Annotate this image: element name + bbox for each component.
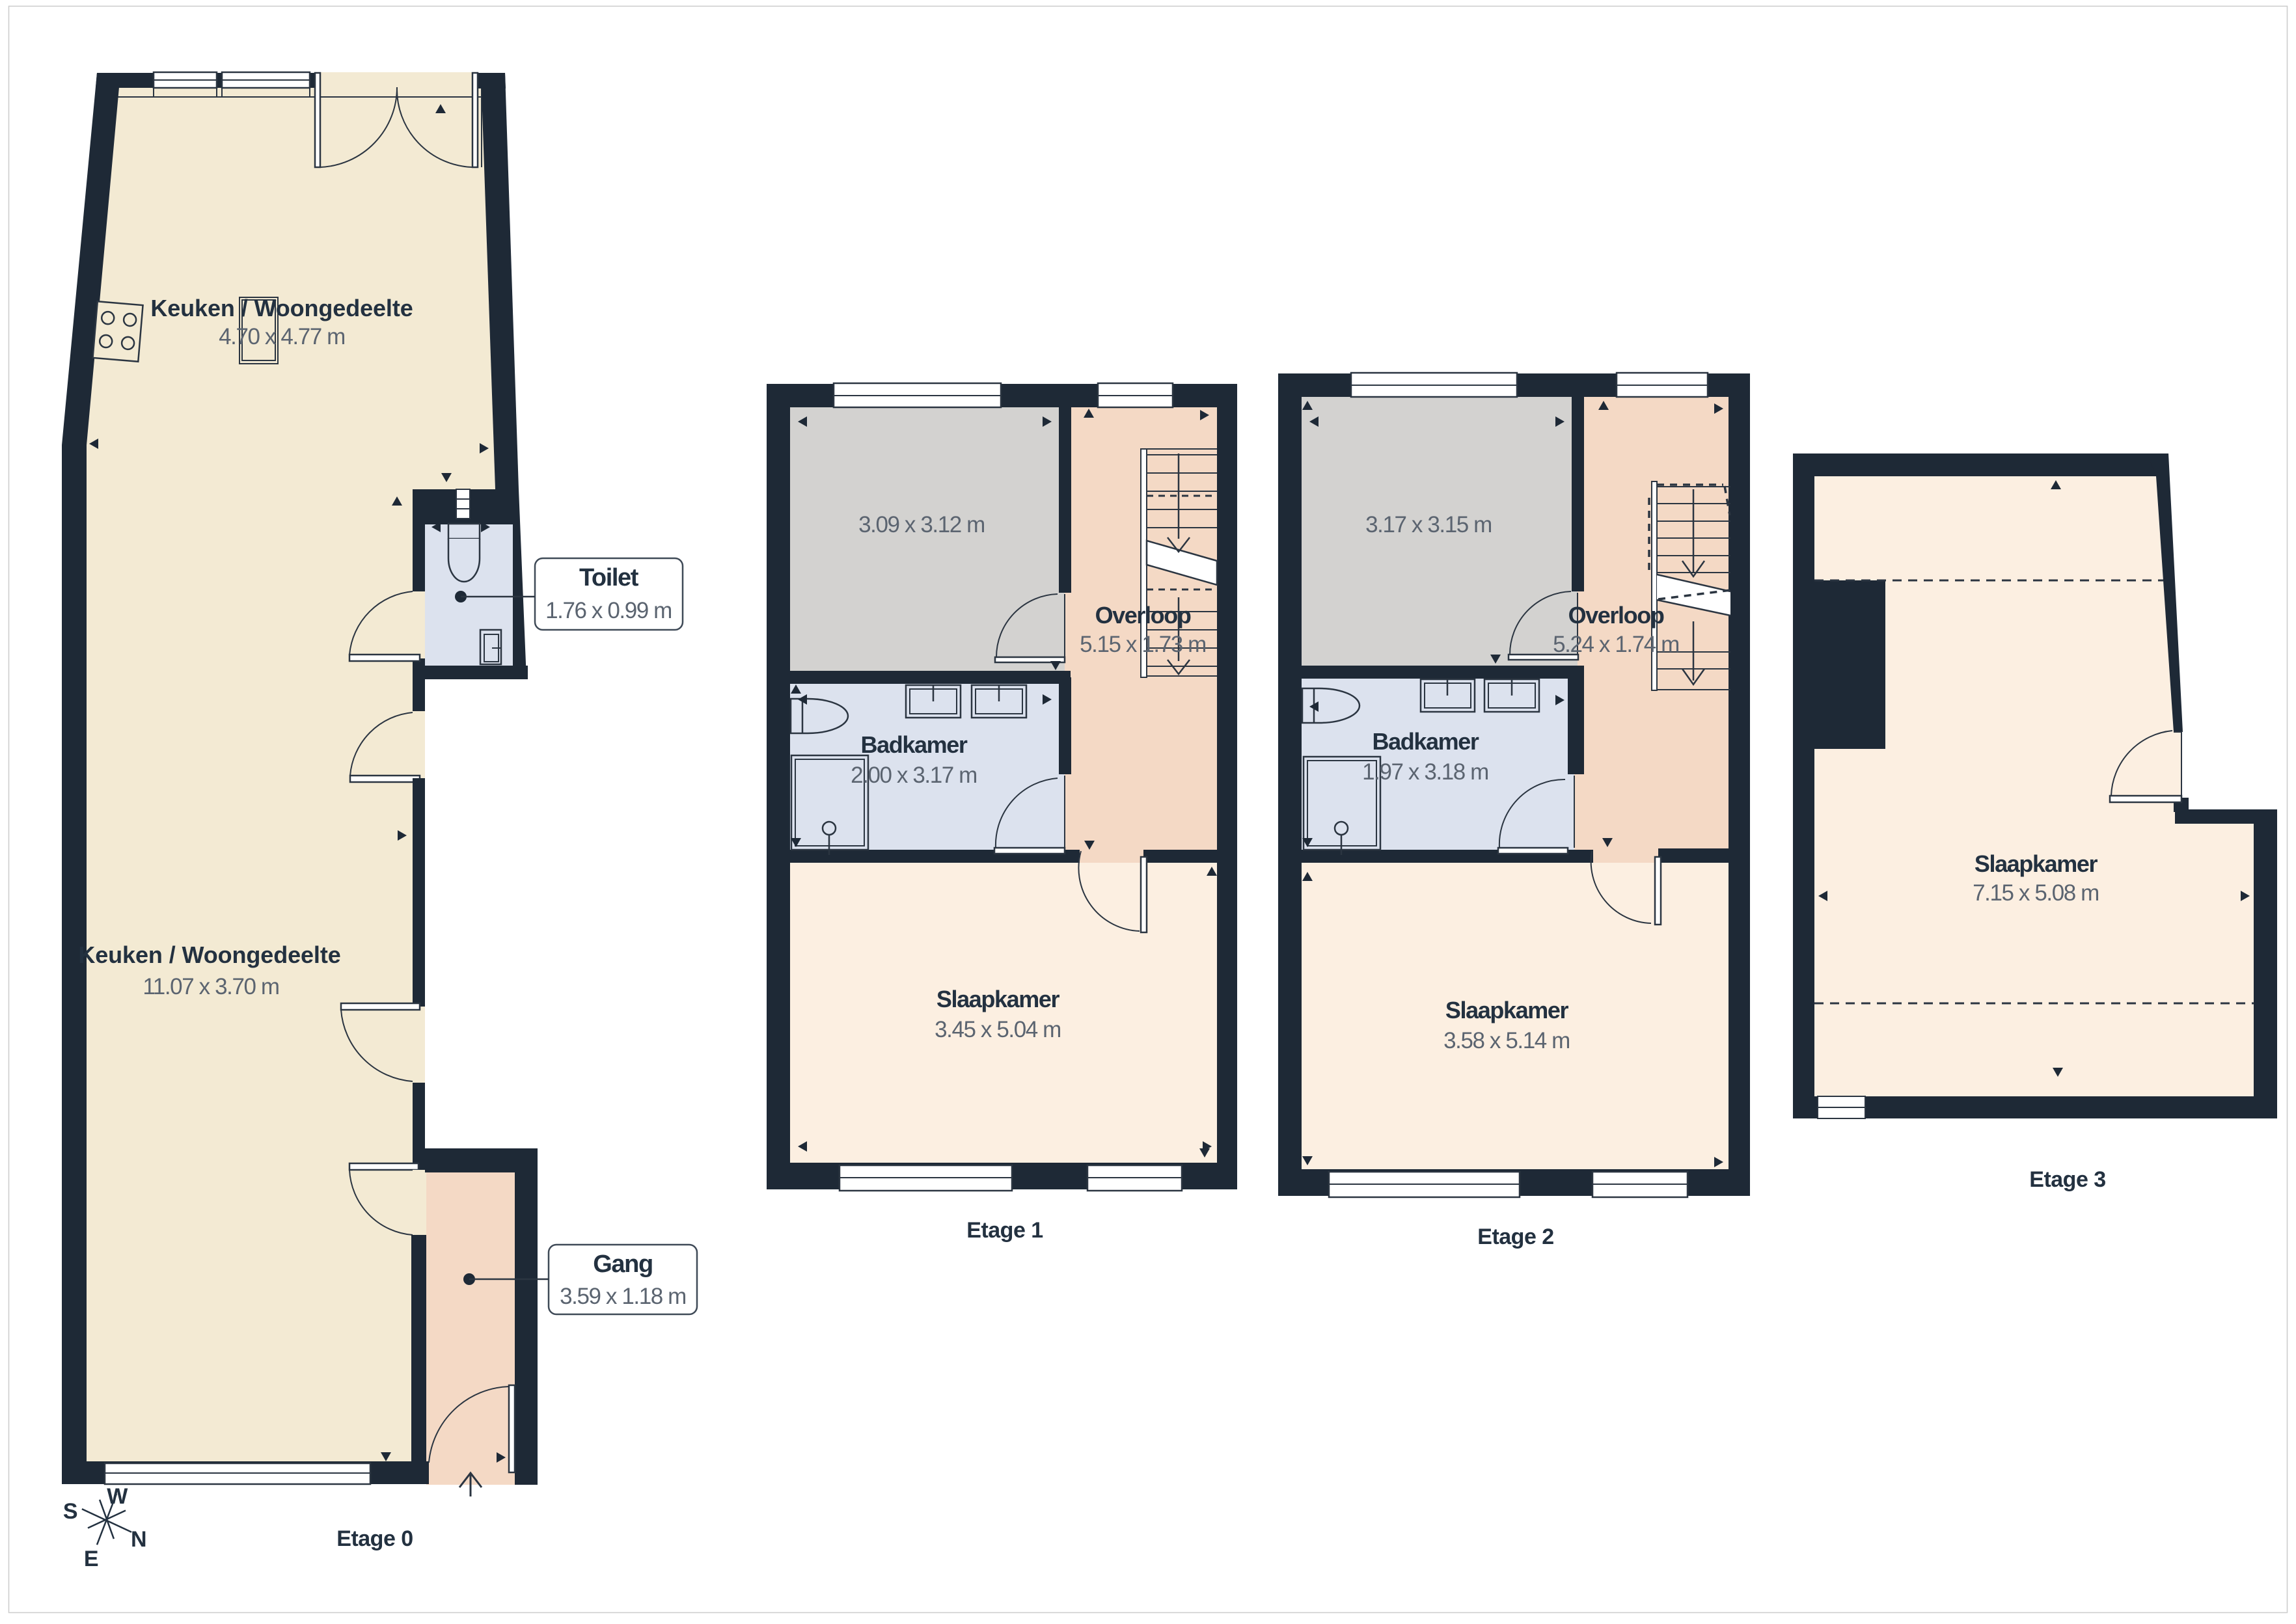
svg-text:11.07 x 3.70 m: 11.07 x 3.70 m <box>143 974 279 999</box>
svg-text:1.76 x 0.99 m: 1.76 x 0.99 m <box>545 598 672 623</box>
svg-text:Etage 1: Etage 1 <box>966 1218 1043 1243</box>
svg-text:Keuken / Woongedeelte: Keuken / Woongedeelte <box>78 941 340 968</box>
svg-text:Etage 3: Etage 3 <box>2029 1167 2105 1192</box>
svg-text:Overloop: Overloop <box>1095 602 1191 629</box>
svg-text:3.58 x 5.14 m: 3.58 x 5.14 m <box>1443 1028 1570 1053</box>
svg-text:Slaapkamer: Slaapkamer <box>1975 850 2098 877</box>
svg-text:3.17 x 3.15 m: 3.17 x 3.15 m <box>1365 512 1492 537</box>
svg-text:Toilet: Toilet <box>579 564 639 591</box>
svg-text:Badkamer: Badkamer <box>861 731 968 758</box>
svg-text:Slaapkamer: Slaapkamer <box>936 986 1060 1012</box>
svg-text:Badkamer: Badkamer <box>1373 728 1479 755</box>
svg-text:5.15 x 1.73 m: 5.15 x 1.73 m <box>1080 632 1206 657</box>
svg-text:4.70 x 4.77 m: 4.70 x 4.77 m <box>219 324 345 349</box>
svg-text:Etage 2: Etage 2 <box>1477 1225 1553 1249</box>
svg-text:Gang: Gang <box>593 1251 653 1278</box>
svg-text:Overloop: Overloop <box>1568 602 1664 629</box>
svg-text:S: S <box>63 1499 77 1524</box>
svg-text:7.15 x 5.08 m: 7.15 x 5.08 m <box>1973 880 2099 906</box>
svg-text:Etage 0: Etage 0 <box>336 1526 413 1551</box>
svg-text:1.97 x 3.18 m: 1.97 x 3.18 m <box>1362 759 1488 785</box>
svg-text:Slaapkamer: Slaapkamer <box>1445 997 1569 1023</box>
svg-text:W: W <box>107 1484 128 1509</box>
svg-text:N: N <box>131 1527 146 1552</box>
svg-text:3.59 x 1.18 m: 3.59 x 1.18 m <box>560 1284 686 1309</box>
svg-text:E: E <box>84 1547 98 1571</box>
svg-text:Keuken / Woongedeelte: Keuken / Woongedeelte <box>150 295 413 321</box>
svg-text:5.24 x 1.74 m: 5.24 x 1.74 m <box>1553 632 1679 657</box>
svg-text:3.45 x 5.04 m: 3.45 x 5.04 m <box>935 1017 1061 1042</box>
svg-text:3.09 x 3.12 m: 3.09 x 3.12 m <box>858 512 985 537</box>
svg-text:2.00 x 3.17 m: 2.00 x 3.17 m <box>851 763 977 788</box>
